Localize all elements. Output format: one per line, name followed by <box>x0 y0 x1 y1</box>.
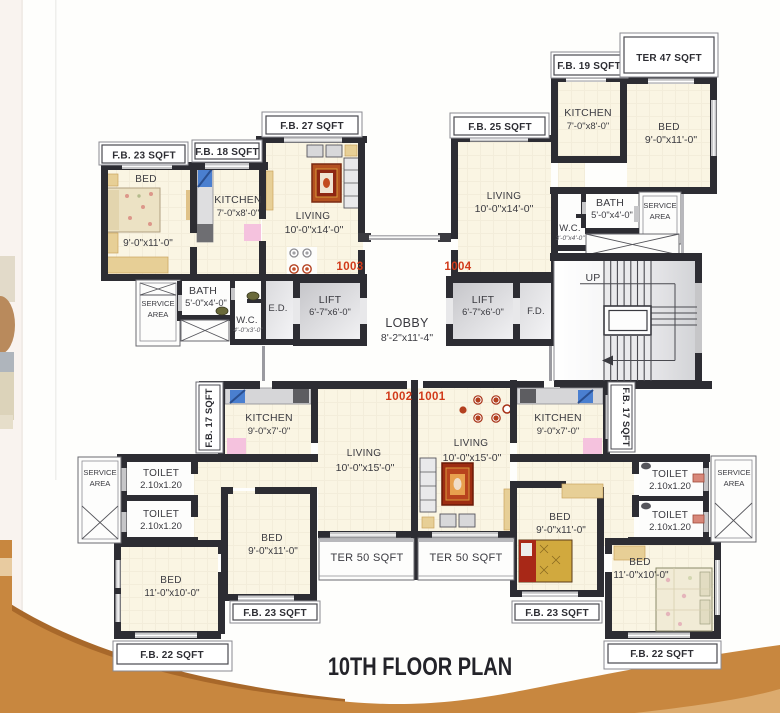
svg-text:LIVING: LIVING <box>347 448 382 459</box>
svg-text:TOILET: TOILET <box>143 509 179 520</box>
svg-text:10TH FLOOR PLAN: 10TH FLOOR PLAN <box>328 653 512 681</box>
svg-text:TOILET: TOILET <box>143 468 179 479</box>
svg-text:F.B. 23 SQFT: F.B. 23 SQFT <box>243 608 307 619</box>
svg-text:KITCHEN: KITCHEN <box>534 412 582 424</box>
svg-text:AREA: AREA <box>650 212 672 221</box>
svg-text:BED: BED <box>160 575 181 586</box>
svg-text:9'-0"x11'-0": 9'-0"x11'-0" <box>123 238 173 249</box>
svg-text:BATH: BATH <box>596 197 624 209</box>
svg-text:2.10x1.20: 2.10x1.20 <box>649 481 691 492</box>
svg-text:1004: 1004 <box>444 261 471 273</box>
svg-text:KITCHEN: KITCHEN <box>245 412 293 424</box>
svg-text:2.10x1.20: 2.10x1.20 <box>140 521 182 532</box>
svg-text:8'-2"x11'-4": 8'-2"x11'-4" <box>381 332 433 344</box>
svg-text:F.B. 23 SQFT: F.B. 23 SQFT <box>112 151 176 162</box>
svg-text:TOILET: TOILET <box>652 469 688 480</box>
svg-text:11'-0"x10'-0": 11'-0"x10'-0" <box>613 570 669 581</box>
svg-text:F.B. 23 SQFT: F.B. 23 SQFT <box>525 608 589 619</box>
svg-text:TER 50 SQFT: TER 50 SQFT <box>430 552 503 564</box>
svg-text:10'-0"x14'-0": 10'-0"x14'-0" <box>285 224 344 236</box>
svg-text:LIFT: LIFT <box>472 294 495 306</box>
svg-text:SERVICE: SERVICE <box>717 468 750 477</box>
svg-text:KITCHEN: KITCHEN <box>564 107 612 119</box>
svg-text:1001: 1001 <box>418 391 445 403</box>
svg-text:F.B. 27 SQFT: F.B. 27 SQFT <box>280 121 344 132</box>
svg-text:F.B. 22 SQFT: F.B. 22 SQFT <box>140 650 204 661</box>
svg-text:9'-0"x11'-0": 9'-0"x11'-0" <box>645 134 697 146</box>
svg-text:7'-0"x8'-0": 7'-0"x8'-0" <box>217 208 260 219</box>
svg-text:SERVICE: SERVICE <box>83 468 116 477</box>
svg-text:F.B. 18 SQFT: F.B. 18 SQFT <box>195 147 259 158</box>
svg-text:LIVING: LIVING <box>296 211 331 222</box>
svg-text:F.B. 19 SQFT: F.B. 19 SQFT <box>557 61 621 72</box>
svg-text:9'-0"x7'-0": 9'-0"x7'-0" <box>537 426 580 437</box>
svg-text:W.C.: W.C. <box>559 223 580 234</box>
svg-text:1003: 1003 <box>336 261 363 273</box>
svg-text:F.B. 22 SQFT: F.B. 22 SQFT <box>630 649 694 660</box>
svg-text:BED: BED <box>549 512 570 523</box>
svg-text:5'-0"x4'-0": 5'-0"x4'-0" <box>185 298 227 308</box>
svg-text:F.B. 25 SQFT: F.B. 25 SQFT <box>468 122 532 133</box>
svg-text:9'-0"x7'-0": 9'-0"x7'-0" <box>248 426 291 437</box>
svg-text:TER 50 SQFT: TER 50 SQFT <box>331 552 404 564</box>
svg-text:TOILET: TOILET <box>652 510 688 521</box>
svg-text:AREA: AREA <box>90 479 112 488</box>
svg-text:10'-0"x15'-0": 10'-0"x15'-0" <box>336 462 395 474</box>
svg-text:SERVICE: SERVICE <box>643 201 676 210</box>
svg-text:2.10x1.20: 2.10x1.20 <box>140 480 182 491</box>
svg-text:2.10x1.20: 2.10x1.20 <box>649 522 691 533</box>
svg-text:BATH: BATH <box>189 285 217 297</box>
svg-text:SERVICE: SERVICE <box>141 299 174 308</box>
svg-text:LIVING: LIVING <box>454 438 489 449</box>
svg-text:BED: BED <box>629 557 650 568</box>
svg-text:7'-0"x8'-0": 7'-0"x8'-0" <box>567 121 610 132</box>
svg-text:AREA: AREA <box>724 479 746 488</box>
svg-text:E.D.: E.D. <box>268 303 287 314</box>
svg-text:10'-0"x14'-0": 10'-0"x14'-0" <box>475 203 534 215</box>
svg-text:W.C.: W.C. <box>236 315 257 326</box>
svg-text:KITCHEN: KITCHEN <box>214 194 262 206</box>
svg-text:F.D.: F.D. <box>527 306 545 317</box>
svg-text:F.B. 17 SQFT: F.B. 17 SQFT <box>621 387 631 446</box>
svg-text:UP: UP <box>586 272 601 284</box>
svg-text:LOBBY: LOBBY <box>385 316 429 330</box>
svg-text:4'-0"x3'-0": 4'-0"x3'-0" <box>233 327 263 334</box>
svg-text:LIFT: LIFT <box>319 294 342 306</box>
svg-text:BED: BED <box>658 122 679 133</box>
svg-text:10'-0"x15'-0": 10'-0"x15'-0" <box>443 452 502 464</box>
svg-text:11'-0"x10'-0": 11'-0"x10'-0" <box>144 588 200 599</box>
svg-text:AREA: AREA <box>148 310 170 319</box>
svg-text:1002: 1002 <box>385 391 412 403</box>
svg-text:F.B. 17 SQFT: F.B. 17 SQFT <box>204 388 214 447</box>
svg-text:9'-0"x11'-0": 9'-0"x11'-0" <box>248 546 298 557</box>
svg-text:BED: BED <box>261 533 282 544</box>
svg-text:3'-0"x4'-0": 3'-0"x4'-0" <box>555 235 585 242</box>
svg-text:BED: BED <box>135 174 156 185</box>
svg-text:LIVING: LIVING <box>487 191 522 202</box>
svg-text:6'-7"x6'-0": 6'-7"x6'-0" <box>462 307 504 317</box>
svg-text:TER 47 SQFT: TER 47 SQFT <box>636 53 702 64</box>
svg-text:9'-0"x11'-0": 9'-0"x11'-0" <box>536 525 586 536</box>
svg-text:6'-7"x6'-0": 6'-7"x6'-0" <box>309 307 351 317</box>
svg-text:5'-0"x4'-0": 5'-0"x4'-0" <box>591 210 633 220</box>
